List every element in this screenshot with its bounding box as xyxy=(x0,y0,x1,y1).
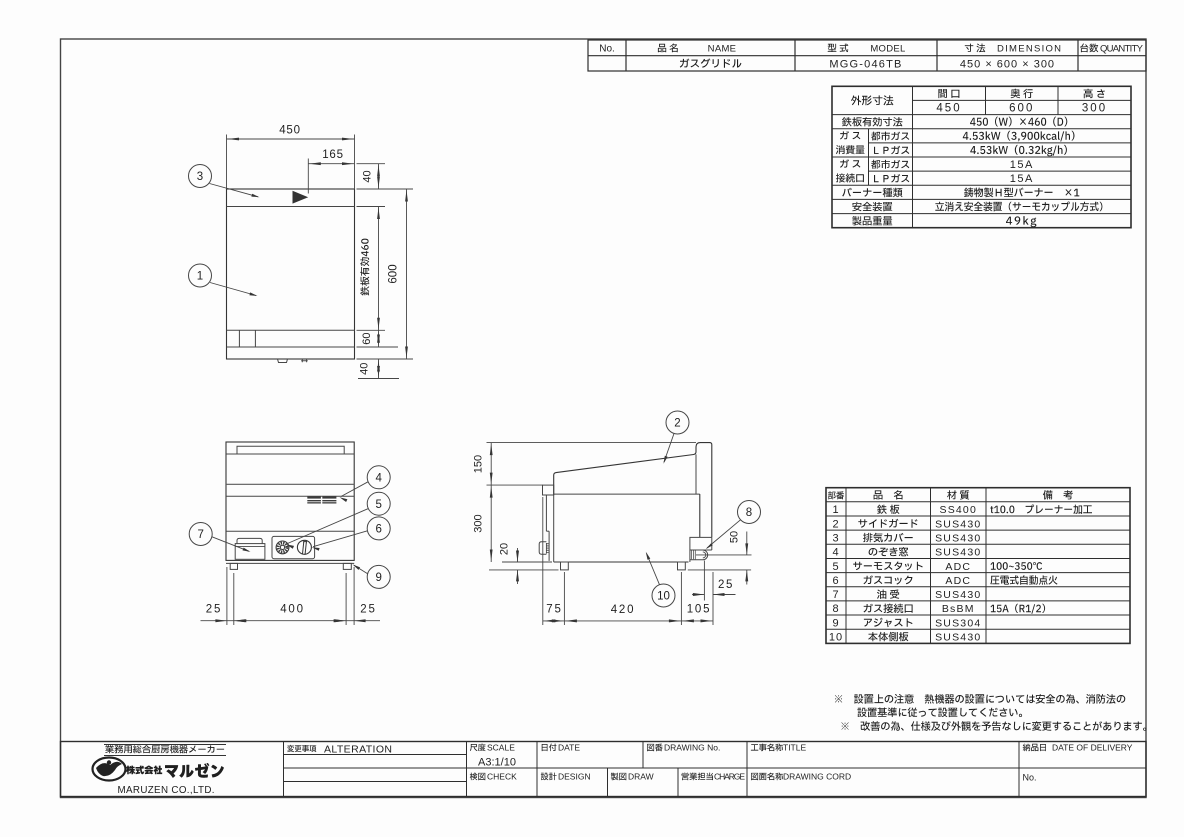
svg-text:SUS430: SUS430 xyxy=(935,532,981,544)
svg-text:40: 40 xyxy=(362,170,374,182)
svg-text:DRAWING No.: DRAWING No. xyxy=(664,743,720,753)
svg-text:600: 600 xyxy=(1009,103,1034,115)
svg-text:CHARGE: CHARGE xyxy=(714,772,745,782)
svg-text:MGG-046TB: MGG-046TB xyxy=(829,58,902,70)
svg-text:CHECK: CHECK xyxy=(487,772,517,782)
svg-text:150: 150 xyxy=(473,455,485,473)
svg-text:10: 10 xyxy=(829,632,843,644)
svg-text:SS400: SS400 xyxy=(939,504,977,516)
svg-text:SUS430: SUS430 xyxy=(935,518,981,530)
svg-text:ALTERATION: ALTERATION xyxy=(324,744,392,756)
svg-text:MARUZEN CO.,LTD.: MARUZEN CO.,LTD. xyxy=(118,785,215,796)
svg-text:6: 6 xyxy=(375,524,381,536)
svg-text:DRAWING CORD: DRAWING CORD xyxy=(783,772,851,782)
svg-text:2: 2 xyxy=(832,518,839,530)
svg-text:5: 5 xyxy=(832,561,839,573)
svg-text:ADC: ADC xyxy=(945,575,971,587)
svg-text:165: 165 xyxy=(322,149,344,161)
svg-text:25: 25 xyxy=(360,604,376,616)
svg-text:BsBM: BsBM xyxy=(942,603,975,615)
svg-text:450 × 600 × 300: 450 × 600 × 300 xyxy=(960,58,1055,70)
svg-text:SUS430: SUS430 xyxy=(935,632,981,644)
svg-text:9: 9 xyxy=(375,572,381,584)
svg-text:A3:1/10: A3:1/10 xyxy=(478,757,516,769)
svg-text:300: 300 xyxy=(473,514,485,532)
svg-text:8: 8 xyxy=(832,603,839,615)
svg-text:SCALE: SCALE xyxy=(487,743,515,753)
svg-text:20: 20 xyxy=(499,543,511,555)
svg-text:15A: 15A xyxy=(1010,173,1034,185)
svg-text:DIMENSION: DIMENSION xyxy=(997,44,1061,55)
svg-text:DATE OF DELIVERY: DATE OF DELIVERY xyxy=(1052,743,1133,753)
svg-text:105: 105 xyxy=(687,604,712,616)
svg-text:25: 25 xyxy=(206,604,222,616)
svg-text:4: 4 xyxy=(375,473,382,485)
svg-text:ADC: ADC xyxy=(945,561,971,573)
svg-text:300: 300 xyxy=(1082,103,1107,115)
svg-text:450: 450 xyxy=(279,125,301,137)
svg-text:10: 10 xyxy=(657,591,670,603)
svg-text:3: 3 xyxy=(197,171,203,183)
svg-text:7: 7 xyxy=(197,529,203,541)
svg-text:4: 4 xyxy=(832,547,839,559)
svg-text:TITLE: TITLE xyxy=(783,743,806,753)
svg-text:1: 1 xyxy=(832,504,839,516)
svg-text:5: 5 xyxy=(375,499,381,511)
svg-text:450: 450 xyxy=(936,103,961,115)
svg-text:1: 1 xyxy=(197,271,203,283)
svg-text:7: 7 xyxy=(832,589,839,601)
svg-text:No.: No. xyxy=(599,44,615,55)
svg-text:9: 9 xyxy=(832,617,839,629)
svg-text:400: 400 xyxy=(280,604,305,616)
svg-text:QUANTITY: QUANTITY xyxy=(1100,44,1144,55)
svg-text:3: 3 xyxy=(832,532,839,544)
svg-text:50: 50 xyxy=(729,531,741,543)
svg-text:SUS430: SUS430 xyxy=(935,547,981,559)
svg-text:DESIGN: DESIGN xyxy=(558,772,591,782)
svg-text:420: 420 xyxy=(611,604,636,616)
svg-text:25: 25 xyxy=(718,579,734,591)
svg-text:75: 75 xyxy=(546,604,562,616)
svg-text:MODEL: MODEL xyxy=(870,44,905,55)
svg-text:40: 40 xyxy=(359,363,371,375)
svg-text:SUS304: SUS304 xyxy=(935,617,981,629)
svg-text:DRAW: DRAW xyxy=(628,772,654,782)
svg-text:No.: No. xyxy=(1023,773,1037,783)
svg-text:60: 60 xyxy=(361,332,373,344)
svg-text:15A: 15A xyxy=(1010,159,1034,171)
svg-text:6: 6 xyxy=(832,575,839,587)
svg-text:600: 600 xyxy=(388,264,400,283)
svg-text:DATE: DATE xyxy=(558,743,580,753)
svg-text:2: 2 xyxy=(674,418,680,430)
svg-text:8: 8 xyxy=(746,507,752,519)
svg-text:SUS430: SUS430 xyxy=(935,589,981,601)
svg-text:NAME: NAME xyxy=(708,44,737,55)
